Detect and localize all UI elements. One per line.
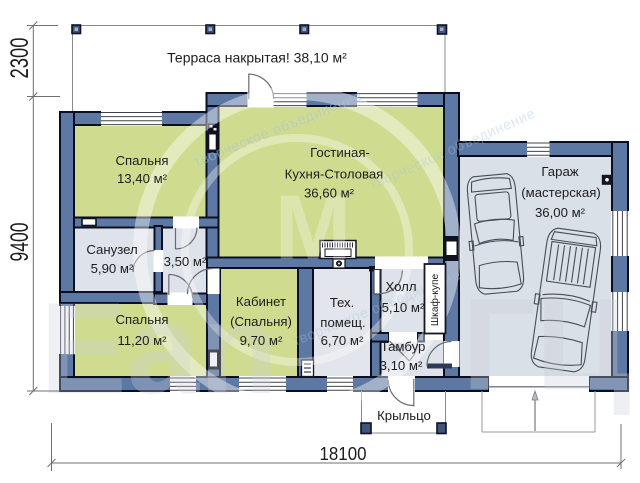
- svg-text:Спальня: Спальня: [116, 153, 169, 168]
- svg-text:13,40 м²: 13,40 м²: [117, 171, 168, 186]
- svg-text:9,70 м²: 9,70 м²: [240, 333, 283, 348]
- svg-text:5,10 м²: 5,10 м²: [382, 300, 425, 315]
- svg-text:2300: 2300: [6, 38, 34, 79]
- svg-text:Тамбур: Тамбур: [381, 339, 426, 354]
- svg-text:(Спальня): (Спальня): [230, 314, 292, 329]
- svg-text:Терраса накрытая! 38,10 м²: Терраса накрытая! 38,10 м²: [167, 50, 347, 66]
- svg-text:9400: 9400: [6, 223, 34, 262]
- svg-text:3,50 м²: 3,50 м²: [164, 254, 207, 269]
- svg-text:18100: 18100: [320, 444, 367, 464]
- svg-text:6,70 м²: 6,70 м²: [321, 333, 364, 348]
- svg-text:Кухня-Столовая: Кухня-Столовая: [285, 167, 384, 182]
- svg-text:Спальня: Спальня: [116, 312, 169, 327]
- svg-text:11,20 м²: 11,20 м²: [117, 333, 167, 348]
- svg-text:Холл: Холл: [385, 279, 416, 294]
- svg-text:Санузел: Санузел: [86, 242, 137, 257]
- svg-text:Гостиная-: Гостиная-: [310, 145, 370, 160]
- svg-text:Крыльцо: Крыльцо: [377, 408, 431, 423]
- svg-text:помещ.: помещ.: [320, 315, 365, 330]
- svg-text:Кабинет: Кабинет: [236, 294, 286, 309]
- svg-text:Шкаф-купе: Шкаф-купе: [429, 274, 441, 327]
- svg-text:ГЦ: ГЦ: [462, 271, 631, 417]
- svg-text:Тех.: Тех.: [330, 295, 355, 310]
- svg-text:5,90 м²: 5,90 м²: [91, 261, 134, 276]
- svg-text:36,00 м²: 36,00 м²: [535, 205, 586, 220]
- svg-text:3,10 м²: 3,10 м²: [380, 358, 423, 373]
- svg-text:Гараж: Гараж: [541, 164, 578, 179]
- svg-text:36,60 м²: 36,60 м²: [304, 186, 355, 201]
- svg-text:(мастерская): (мастерская): [521, 185, 600, 200]
